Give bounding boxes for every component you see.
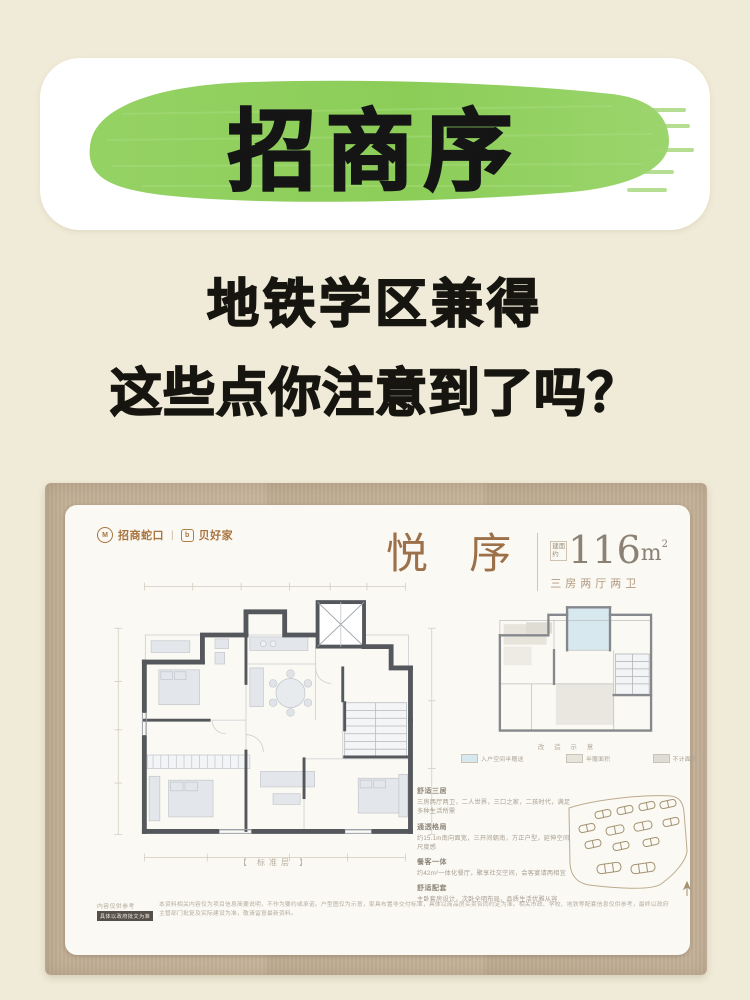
legend-label: 半赠面积 [586,754,610,763]
legend-swatch-blue [461,754,478,763]
page-title: 招商序 [40,58,710,230]
floor-label: 【 标准层 】 [95,857,455,868]
legend-row: 入户空间半赠送 半赠面积 不计面积 [461,754,697,763]
feature-item: 餐客一体 约42m²一体化餐厅，聚享社交空间，会客宴请两相宜 [417,857,573,878]
area-superscript: 2 [662,539,668,550]
brand-separator: | [171,530,174,541]
mini-floorplan-drawing [468,598,668,738]
brand-name-left: 招商蛇口 [118,527,164,543]
feature-list: 舒适三居 三房两厅两卫，二人世界，三口之家，二孩时代，满足多种生活所需 通透格局… [417,786,573,910]
room-type-label: 三房两厅两卫 [550,575,668,591]
disclaimer-tag-top: 内容仅供参考 [97,901,153,910]
main-floorplan-drawing [95,575,455,875]
legend-item: 入户空间半赠送 [461,754,524,763]
feature-title: 通透格局 [417,822,573,832]
area-block: 建面约 116 m 2 三房两厅两卫 [550,531,668,591]
subtitle-block: 地铁学区兼得 这些点你注意到了吗？ [0,262,750,426]
feature-title: 舒适配套 [417,883,573,893]
floorplan-card: M 招商蛇口 | b 贝好家 悦 序 建面约 116 m 2 三房两厅两卫 [65,505,690,955]
legend-label: 不计面积 [673,754,697,763]
area-unit: m [641,543,662,565]
area-prefix: 建面约 [550,541,567,561]
disclaimer-row: 内容仅供参考 具体以政府批文为准 本资料相关内容仅为项目信息简要说明，不作为要约… [97,901,672,921]
disclaimer-tag: 内容仅供参考 具体以政府批文为准 [97,901,153,921]
legend-item: 半赠面积 [566,754,610,763]
feature-title: 餐客一体 [417,857,573,867]
brand-row: M 招商蛇口 | b 贝好家 [97,527,233,543]
disclaimer-tag-badge: 具体以政府批文为准 [97,911,153,921]
mini-plan-caption: 改 造 示 意 [465,741,670,751]
legend-label: 入户空间半赠送 [481,754,524,763]
site-plan-sketch [553,788,703,900]
legend-swatch-beige [566,754,583,763]
highlight-blue-room [567,607,610,650]
legend-item: 不计面积 [653,754,697,763]
legend-swatch-gray [653,754,670,763]
plan-name: 悦 序 [386,531,525,577]
area-value: 116 [568,531,641,569]
feature-body: 约42m²一体化餐厅，聚享社交空间，会客宴请两相宜 [417,869,573,878]
brand-name-right: 贝好家 [199,527,234,543]
feature-title: 舒适三居 [417,786,573,796]
title-banner: 招商序 [40,58,710,230]
title-divider [537,533,538,591]
subtitle-line-2: 这些点你注意到了吗？ [0,351,750,426]
feature-body: 约15.1m南向面宽，三开间朝南，方正户型，延伸空间尺度感 [417,834,573,853]
poster-photo-frame: M 招商蛇口 | b 贝好家 悦 序 建面约 116 m 2 三房两厅两卫 [45,483,707,975]
feature-item: 舒适三居 三房两厅两卫，二人世界，三口之家，二孩时代，满足多种生活所需 [417,786,573,817]
feature-item: 通透格局 约15.1m南向面宽，三开间朝南，方正户型，延伸空间尺度感 [417,822,573,853]
feature-body: 三房两厅两卫，二人世界，三口之家，二孩时代，满足多种生活所需 [417,798,573,817]
cmsk-logo-icon: M [97,527,113,543]
disclaimer-text: 本资料相关内容仅为项目信息简要说明，不作为要约或承诺。户型图仅为示意，家具布置非… [159,901,672,919]
beihaojia-logo-icon: b [181,529,194,542]
subtitle-line-1: 地铁学区兼得 [0,262,750,337]
north-arrow-icon [684,882,690,896]
